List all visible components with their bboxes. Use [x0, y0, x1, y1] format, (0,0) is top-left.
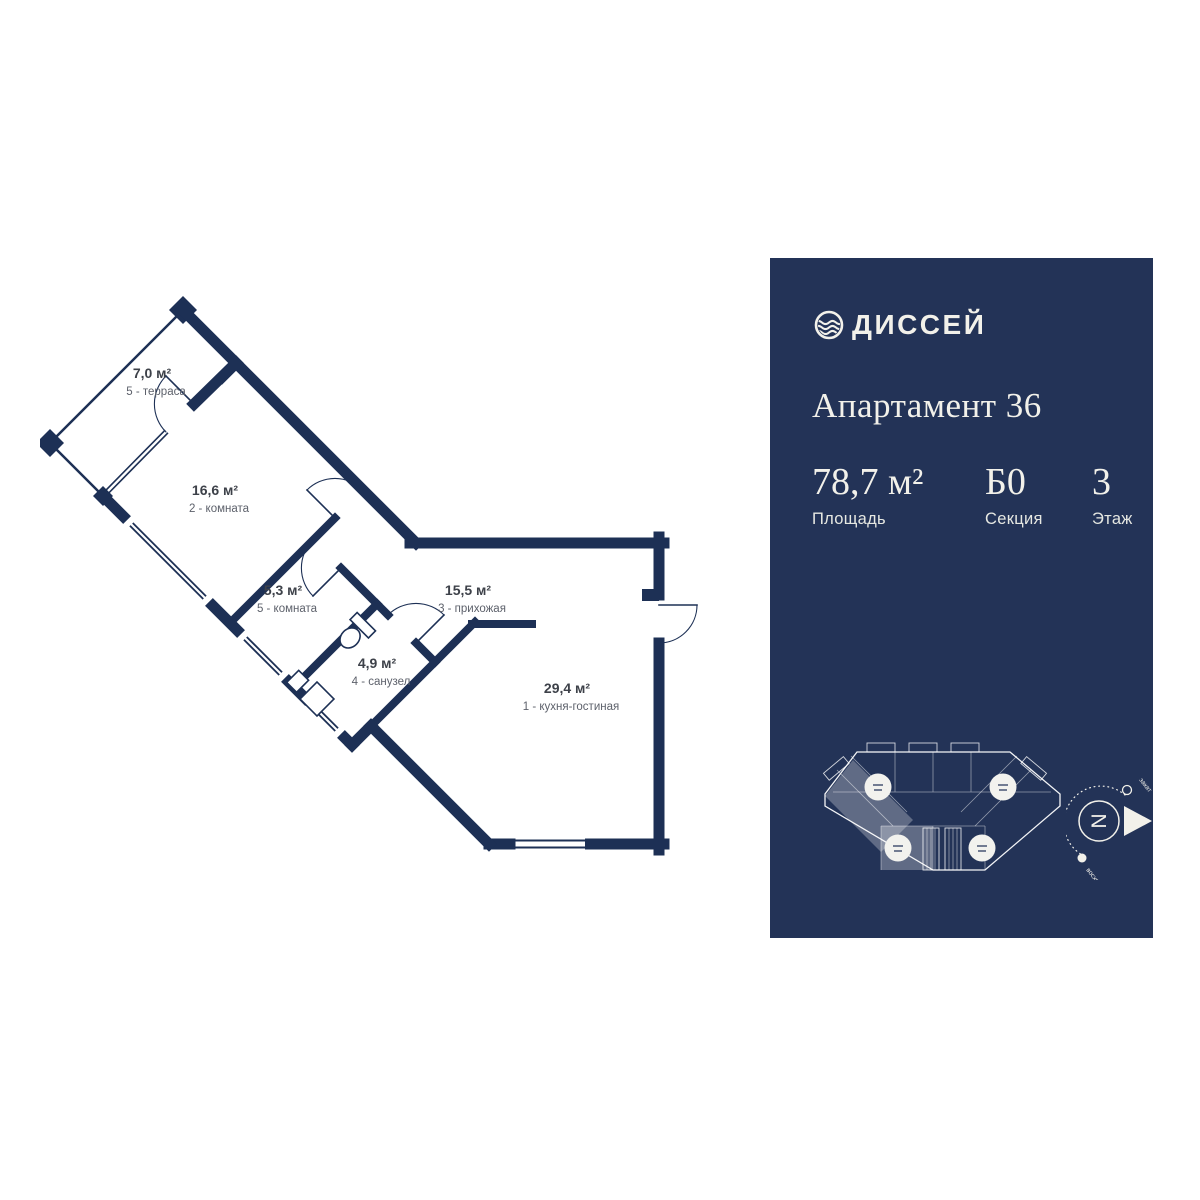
- room-name: 3 - прихожая: [438, 603, 506, 615]
- room-area: 7,0 м²: [133, 365, 172, 381]
- exterior-wall: [352, 726, 371, 745]
- sunset-label: закат: [1137, 777, 1152, 794]
- window-gap: [246, 639, 280, 673]
- toilet: [333, 612, 375, 654]
- terrace-wall: [50, 443, 103, 496]
- stat-area: 78,7 м² Площадь: [812, 463, 923, 529]
- room-name: 5 - терраса: [126, 386, 186, 398]
- room-name: 4 - санузел: [352, 676, 411, 688]
- compass-north: N: [1086, 813, 1109, 828]
- room-area: 29,4 м²: [544, 680, 590, 696]
- floor-plan: 7,0 м² 5 - терраса 16,6 м² 2 - комната 5…: [40, 293, 700, 883]
- sunrise-marker: [1078, 854, 1087, 863]
- room-name: 2 - комната: [189, 503, 250, 515]
- compass: закат восход N: [1066, 768, 1158, 880]
- building-mini-plan: [803, 730, 1065, 898]
- door-arc: [388, 603, 444, 615]
- stat-section-label: Секция: [985, 510, 1043, 529]
- washer: [300, 682, 334, 716]
- room-name: 1 - кухня-гостиная: [523, 701, 619, 713]
- window-gap: [510, 837, 585, 851]
- room-area: 15,5 м²: [445, 582, 491, 598]
- window: [102, 431, 168, 498]
- stat-area-value: 78,7 м²: [812, 463, 923, 503]
- logo: ДИССЕЙ: [812, 308, 986, 342]
- door-leaf: [416, 615, 444, 643]
- room-name: 5 - комната: [257, 603, 318, 615]
- wall-jog: [642, 589, 659, 601]
- stat-section-value: Б0: [985, 463, 1043, 503]
- wall-stub: [222, 363, 236, 377]
- door-leaf: [313, 568, 341, 596]
- room-area: 16,6 м²: [192, 482, 238, 498]
- door-leaf: [307, 490, 335, 518]
- room-area: 4,9 м²: [358, 655, 397, 671]
- sunset-marker: [1123, 786, 1132, 795]
- room-area: 5,3 м²: [264, 582, 303, 598]
- partition-wall: [341, 568, 377, 604]
- logo-wave-o-icon: [812, 308, 846, 342]
- window-gap: [132, 525, 204, 597]
- partition-wall: [294, 604, 377, 687]
- sunrise-label: восход: [1084, 867, 1102, 880]
- logo-text: ДИССЕЙ: [852, 309, 986, 341]
- exterior-wall: [371, 726, 489, 844]
- compass-arrow: [1124, 806, 1152, 836]
- apartment-title: Апартамент 36: [812, 386, 1042, 426]
- stat-floor: 3 Этаж: [1092, 463, 1133, 529]
- stat-area-label: Площадь: [812, 510, 923, 529]
- stat-section: Б0 Секция: [985, 463, 1043, 529]
- stat-floor-label: Этаж: [1092, 510, 1133, 529]
- stat-floor-value: 3: [1092, 463, 1133, 503]
- page: 7,0 м² 5 - терраса 16,6 м² 2 - комната 5…: [0, 0, 1200, 1200]
- info-panel: ДИССЕЙ Апартамент 36 78,7 м² Площадь Б0 …: [770, 258, 1153, 938]
- door-arc: [154, 376, 166, 432]
- entrance-door-arc: [659, 605, 697, 643]
